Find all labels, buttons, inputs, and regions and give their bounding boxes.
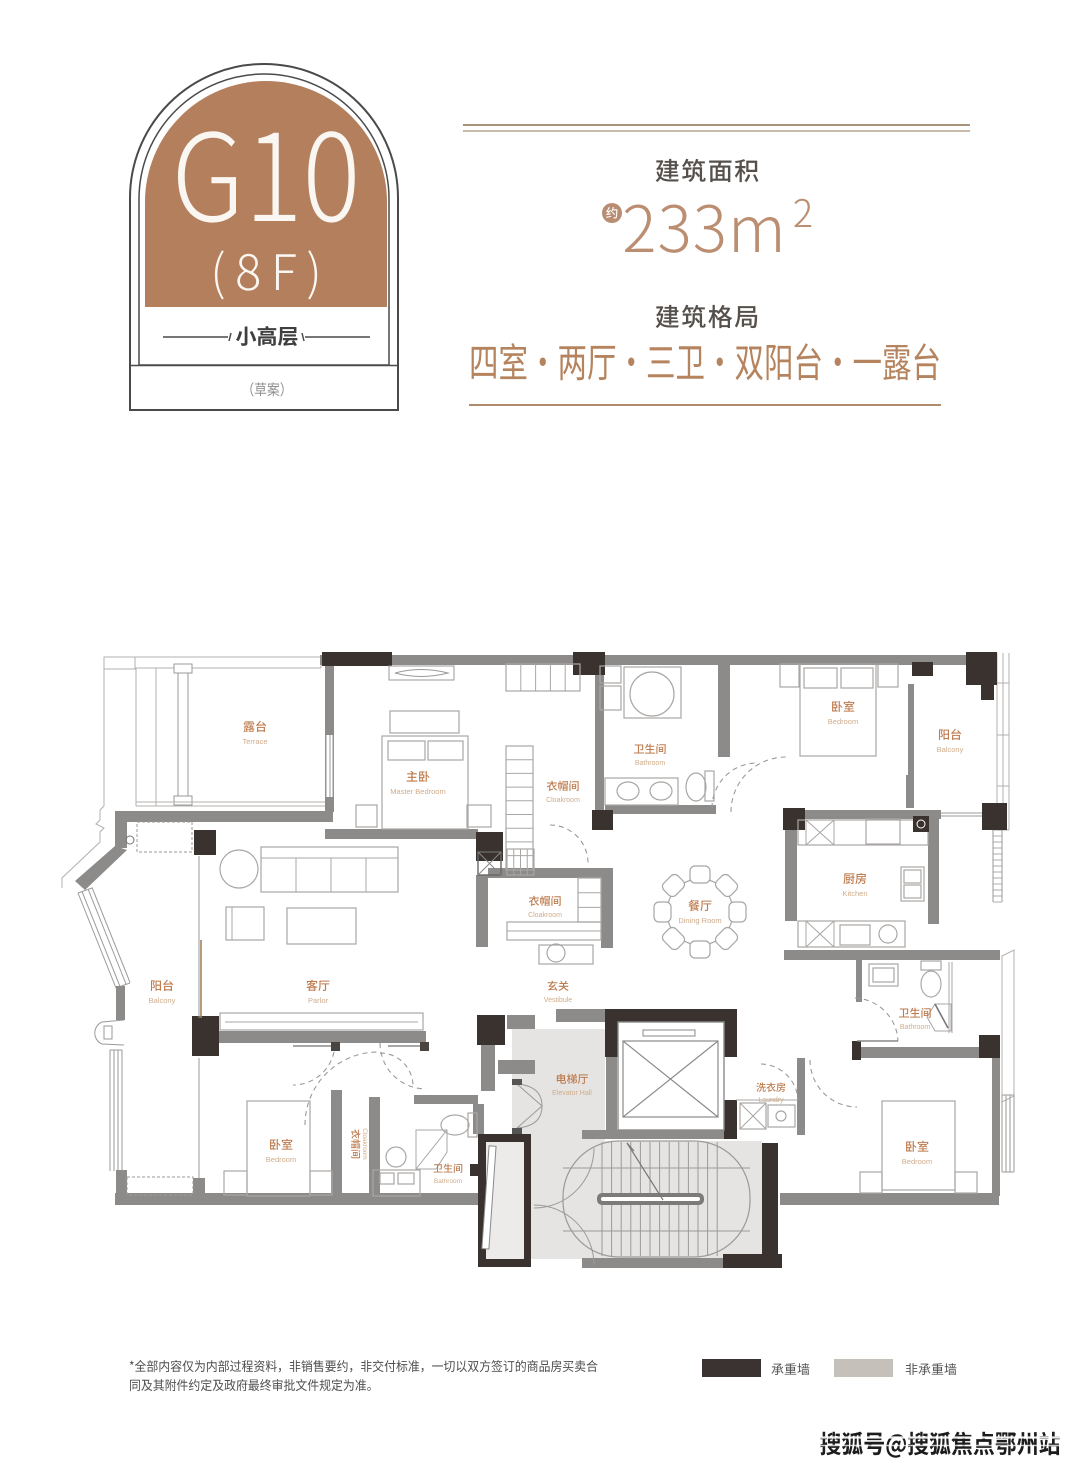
svg-text:Bathroom: Bathroom [635, 760, 666, 767]
svg-text:Parlor: Parlor [308, 996, 329, 1005]
svg-text:Elevator Hall: Elevator Hall [552, 1090, 592, 1097]
svg-text:Dining Room: Dining Room [678, 916, 721, 925]
svg-text:Bedroom: Bedroom [266, 1155, 296, 1164]
svg-text:Master Bedroom: Master Bedroom [390, 787, 445, 796]
svg-text:Bedroom: Bedroom [902, 1157, 932, 1166]
svg-text:Kitchen: Kitchen [842, 889, 867, 898]
svg-text:Cloakroom: Cloakroom [546, 797, 580, 804]
svg-text:Cloakroom: Cloakroom [528, 912, 562, 919]
svg-text:Bathroom: Bathroom [434, 1178, 462, 1185]
svg-text:Balcony: Balcony [149, 996, 176, 1005]
svg-text:Balcony: Balcony [937, 745, 964, 754]
svg-text:Bathroom: Bathroom [900, 1024, 931, 1031]
svg-text:Terrace: Terrace [242, 737, 267, 746]
svg-text:Vestibule: Vestibule [544, 997, 573, 1004]
svg-text:Cloakroom: Cloakroom [361, 1128, 368, 1159]
svg-text:Bedroom: Bedroom [828, 717, 858, 726]
svg-text:Laundry: Laundry [758, 1097, 784, 1104]
